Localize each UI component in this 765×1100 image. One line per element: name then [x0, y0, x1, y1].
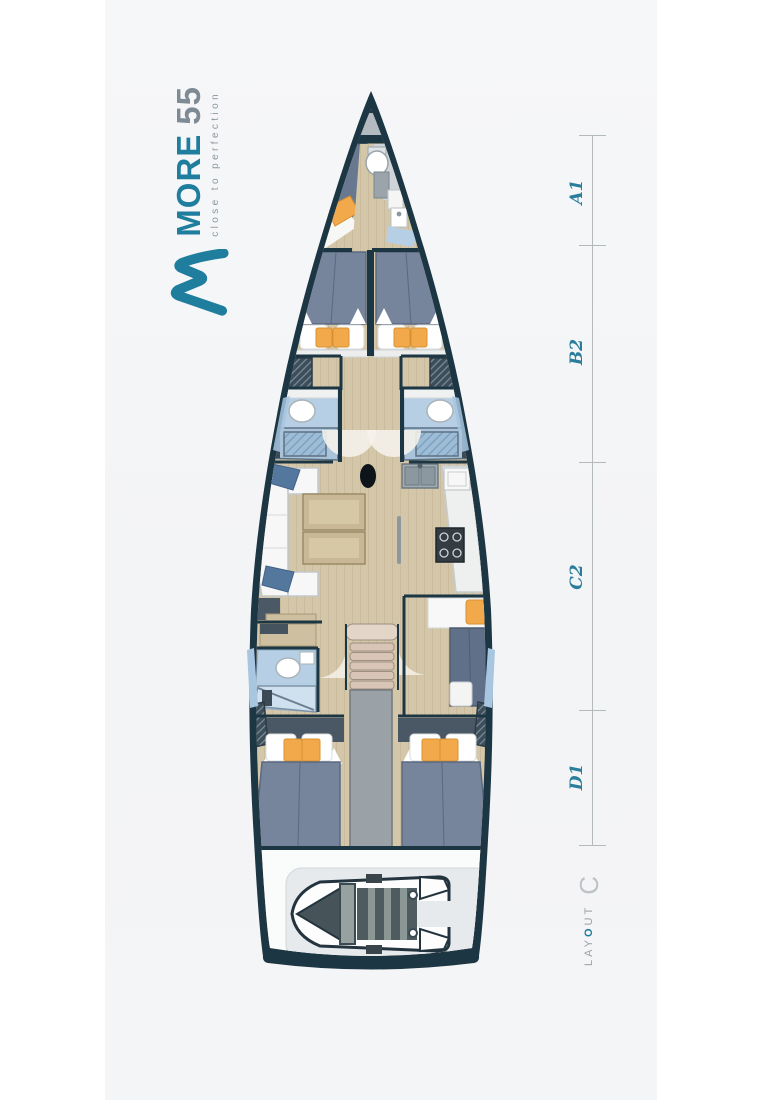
scale-tick — [579, 135, 606, 136]
section-label-a1: A1 — [566, 169, 588, 215]
wardrobe — [474, 702, 496, 748]
orange-cushion — [440, 739, 458, 761]
scale-tick — [579, 710, 606, 711]
stove-icon — [436, 528, 464, 562]
head-port — [258, 388, 338, 460]
transom — [248, 850, 494, 960]
shower-grate — [416, 432, 458, 456]
sink-icon — [391, 208, 407, 227]
scale-tick — [579, 245, 606, 246]
orange-cushion — [333, 328, 349, 347]
scale-tick — [579, 845, 606, 846]
orange-cushion — [284, 739, 302, 761]
stair-tread — [350, 672, 394, 680]
engine-corridor — [350, 690, 392, 848]
toilet-icon — [276, 658, 300, 678]
section-label-c2: C2 — [566, 554, 588, 600]
dimension-scale-line — [592, 135, 593, 845]
double-bed — [402, 762, 488, 848]
section-label-d1: D1 — [566, 754, 588, 800]
layout-variant: C — [576, 876, 602, 895]
toilet-icon — [366, 151, 388, 175]
motor-clamp — [366, 874, 382, 883]
stair-tread — [350, 653, 394, 661]
orange-cushion — [422, 739, 440, 761]
seat — [450, 682, 472, 706]
sink-icon — [300, 652, 314, 664]
toilet-icon — [289, 400, 315, 422]
head-starboard — [404, 388, 484, 460]
orange-cushion — [394, 328, 410, 347]
brand-name: MORE55 — [172, 86, 205, 237]
model-number: 55 — [170, 86, 207, 125]
orange-cushion — [411, 328, 427, 347]
dinghy — [292, 874, 451, 954]
motor-clamp — [366, 945, 382, 954]
section-label-b2: B2 — [566, 329, 588, 375]
layout-badge: LAYOUT C — [574, 870, 604, 966]
stair-tread — [350, 681, 394, 689]
toilet-icon — [427, 400, 453, 422]
orange-cushion — [316, 328, 332, 347]
layout-word-prefix: LAY — [583, 937, 595, 966]
brand-logo: MORE55 close to perfection — [152, 86, 240, 316]
layout-word-suffix: UT — [583, 905, 595, 926]
logo-text: MORE55 close to perfection — [172, 86, 221, 237]
page: { "logo": { "brand": "MORE", "model": "5… — [0, 0, 765, 1100]
dinghy-transom — [340, 884, 355, 944]
aft-cabin-starboard — [398, 702, 496, 848]
yacht-floor-plan — [0, 0, 765, 1100]
wardrobe — [246, 702, 268, 748]
orange-cushion — [302, 739, 320, 761]
scale-tick — [579, 462, 606, 463]
locker — [374, 172, 389, 198]
double-bed — [254, 762, 340, 848]
brand-tagline: close to perfection — [210, 86, 221, 237]
aft-cabin-port — [246, 702, 344, 848]
aft-head-port — [254, 624, 316, 712]
shower-grate — [284, 432, 326, 456]
brand-word: MORE — [170, 134, 207, 237]
stair-tread — [350, 643, 394, 651]
grab-rail — [397, 516, 401, 564]
mast — [360, 464, 376, 488]
layout-word: LAYOUT — [583, 905, 595, 966]
layout-o-mark: O — [583, 925, 595, 937]
stair-tread — [350, 662, 394, 670]
wave-m-icon — [157, 249, 235, 316]
forepeak-cabin — [298, 144, 418, 256]
